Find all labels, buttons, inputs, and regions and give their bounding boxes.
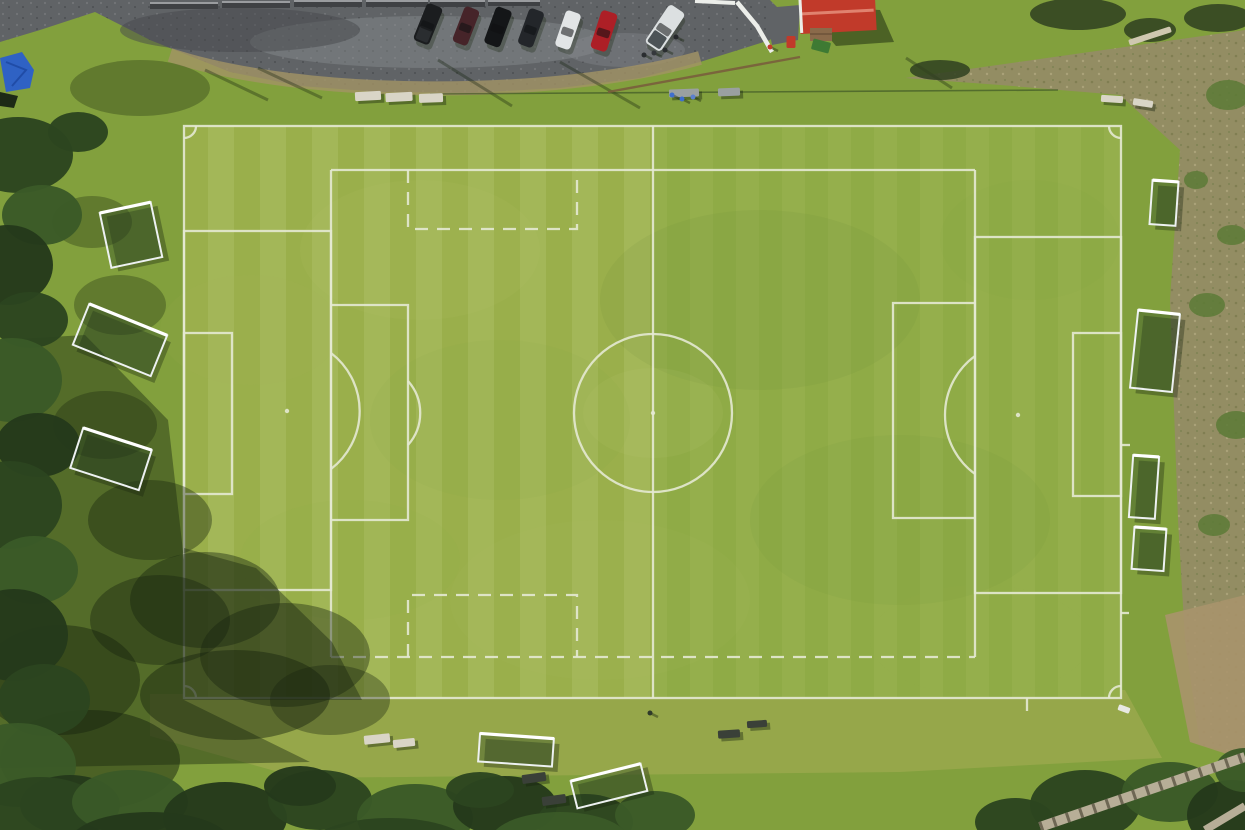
- guardrail-1: [222, 1, 290, 8]
- bench-top-2: [385, 92, 416, 106]
- guardrail-3: [366, 0, 428, 7]
- turf-mottle-9: [870, 585, 1090, 695]
- prop-body: [787, 36, 796, 48]
- portable-goal-right-1: [1149, 180, 1184, 231]
- clubhouse-gable-trim: [800, 0, 802, 33]
- guardrail-4: [430, 0, 485, 7]
- portable-goal-bottom-1: [478, 733, 560, 772]
- aerial-photo-frame: Aerial top-down drone photo of a grass f…: [0, 0, 1245, 830]
- dark-bush-3: [910, 60, 970, 80]
- white-fence-bar: [695, 1, 735, 3]
- center-spot: [651, 411, 655, 415]
- person-figure: [680, 97, 685, 102]
- heath-bush-1: [1189, 293, 1225, 317]
- bench-top-1: [355, 91, 385, 105]
- lawn-mower-red: [787, 36, 796, 48]
- person-figure: [652, 51, 657, 56]
- guardrail-5: [488, 0, 540, 6]
- gravel-dark-patch: [120, 8, 360, 52]
- bench-seat: [718, 729, 741, 739]
- bench-seat: [385, 92, 412, 102]
- goal-crossbar: [1153, 180, 1179, 182]
- shadow-blob-10: [270, 665, 390, 735]
- portable-goal-right-4: [1131, 527, 1172, 577]
- right-penalty-spot: [1016, 413, 1020, 417]
- person-figure: [642, 53, 647, 58]
- heath-bush-5: [1184, 171, 1208, 189]
- aerial-photo: Aerial top-down drone photo of a grass f…: [0, 0, 1245, 830]
- bench-seat: [419, 93, 443, 103]
- goal-net: [1149, 180, 1178, 226]
- person-figure: [670, 93, 675, 98]
- portable-goal-right-3: [1129, 455, 1166, 524]
- person-figure: [768, 45, 773, 50]
- person-figure: [663, 48, 668, 53]
- bench-seat: [718, 88, 740, 97]
- goal-crossbar: [1135, 527, 1167, 529]
- tree-left-12: [48, 112, 108, 152]
- bench-bottom-5: [718, 729, 744, 742]
- bench-topright-1: [1101, 95, 1127, 107]
- tree-bottom-9: [446, 772, 514, 808]
- guardrail-2: [294, 0, 362, 7]
- person-figure: [674, 35, 679, 40]
- shadow-blob-3: [88, 480, 212, 560]
- tree-bottom-8: [264, 766, 336, 806]
- heath-bush-3: [1198, 514, 1230, 536]
- portable-goal-left-1: [100, 201, 169, 273]
- bench-top-3: [419, 93, 446, 106]
- person-figure: [691, 95, 696, 100]
- shadow-blob-11: [70, 60, 210, 116]
- turf-mottle-0: [300, 180, 540, 320]
- bench-seat: [747, 720, 767, 728]
- bench-top-5: [718, 88, 743, 100]
- portable-goal-right-2: [1130, 310, 1186, 398]
- turf-mottle-8: [160, 275, 340, 385]
- goal-crossbar: [1133, 455, 1159, 457]
- turf-mottle-3: [750, 435, 1050, 605]
- left-penalty-spot: [285, 409, 289, 413]
- guardrail-0: [150, 2, 218, 9]
- goal-net: [1132, 527, 1167, 571]
- person-figure: [648, 711, 653, 716]
- turf-mottle-2: [600, 210, 920, 390]
- turf-mottle-7: [940, 180, 1120, 300]
- bench-seat: [355, 91, 381, 101]
